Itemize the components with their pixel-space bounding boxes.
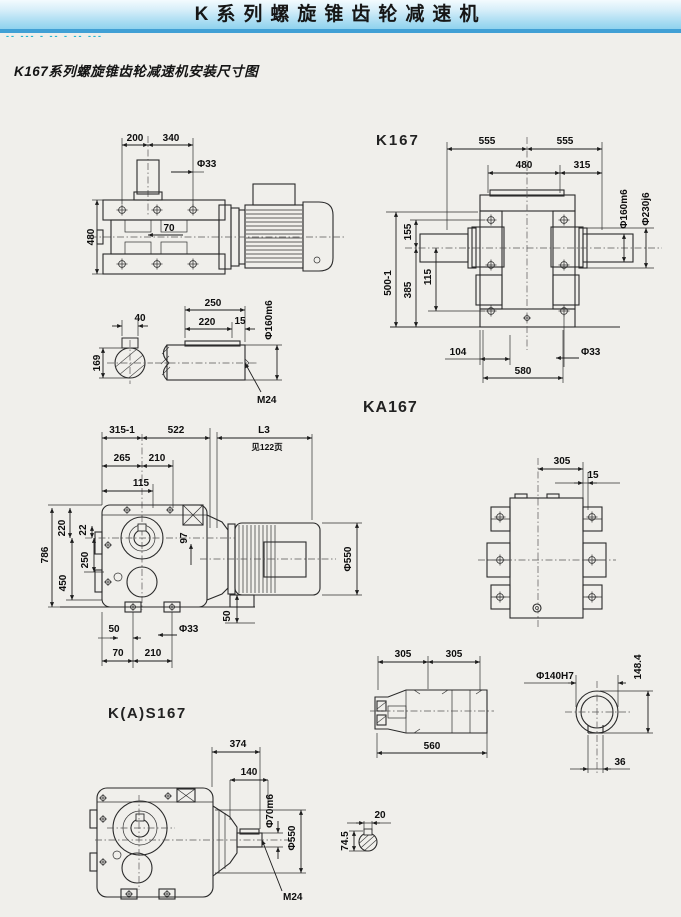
- ka167-dimensions-bottom: 50 Φ33 70 210 50: [98, 595, 255, 668]
- dim-169: 169: [92, 354, 103, 371]
- dim-70: 70: [163, 223, 175, 234]
- gearbox-motor-outline: [90, 160, 345, 274]
- drawing-k167-front-view: 555 555 480 315: [370, 125, 681, 395]
- k167-dimensions-top: 555 555 480 315: [447, 136, 602, 230]
- dim-450: 450: [58, 574, 69, 591]
- dim-74-5: 74.5: [340, 831, 351, 851]
- dim-250: 250: [205, 298, 222, 309]
- dim-dia550: Φ550: [343, 546, 354, 571]
- dim-560: 560: [424, 741, 441, 752]
- drawing-ka167-view: 315-1 522 L3 见122页 265 210 115: [40, 420, 385, 682]
- dim-220v: 220: [57, 519, 68, 536]
- dim-50-right: 50: [222, 610, 233, 622]
- dim-555-left: 555: [479, 136, 496, 147]
- dim-500-1: 500-1: [383, 270, 394, 296]
- dim-15: 15: [587, 470, 599, 481]
- motor-fins: [246, 210, 302, 262]
- k167-dimensions-bottom: 104 580 Φ33: [445, 315, 601, 383]
- dim-36: 36: [614, 757, 626, 768]
- bore-dimensions: Φ140H7 148.4 36: [524, 654, 653, 773]
- dim-70b: 70: [112, 648, 124, 659]
- page-title: K系列螺旋锥齿轮减速机: [0, 0, 681, 29]
- kas167-dimensions-right: Φ70m6 Φ550 M24: [215, 794, 306, 903]
- dim-50-left: 50: [108, 624, 120, 635]
- dim-305: 305: [554, 456, 571, 467]
- dim-522: 522: [168, 425, 185, 436]
- dim-786: 786: [40, 546, 51, 563]
- dim-dia160: Φ160m6: [264, 300, 275, 340]
- dim-140: 140: [241, 767, 258, 778]
- drawing-bore-detail: Φ140H7 148.4 36: [510, 645, 681, 780]
- dim-dia550b: Φ550: [287, 825, 298, 850]
- ka167-dimensions-left: 786 450 220 22 250: [40, 505, 104, 607]
- watermark-text: -- --- - -- - -- ---: [6, 31, 103, 41]
- dim-dia70m6: Φ70m6: [265, 794, 276, 828]
- dim-dia33b: Φ33: [179, 624, 199, 635]
- page-header: K系列螺旋锥齿轮减速机: [0, 0, 681, 33]
- dim-580: 580: [515, 366, 532, 377]
- drawing-sheet: K系列螺旋锥齿轮减速机 -- --- - -- - -- --- K167系列螺…: [0, 0, 681, 917]
- output-shaft-detail: 40 169 250 220 15 Φ160m6: [92, 298, 282, 406]
- dim-250v: 250: [80, 551, 91, 568]
- dim-22: 22: [78, 524, 89, 536]
- dim-20: 20: [374, 810, 386, 821]
- dim-210: 210: [149, 453, 166, 464]
- dim-315-1: 315-1: [109, 425, 135, 436]
- side-view-dimensions: 200 340 Φ33 70 480: [86, 133, 217, 274]
- kas167-dimensions-top: 374 140: [212, 739, 268, 829]
- hollow-shaft-dimensions: 305 305 560: [377, 649, 487, 758]
- dim-m24: M24: [257, 395, 277, 406]
- drawing-key-section: 20 74.5: [335, 795, 455, 875]
- ka167-housing-outline: 97: [60, 505, 336, 612]
- dim-dia230j6: Φ230j6: [641, 192, 652, 226]
- drawing-kas167-view: 374 140: [85, 725, 320, 917]
- dim-dia140H7: Φ140H7: [536, 671, 574, 682]
- dim-40: 40: [134, 313, 146, 324]
- dim-555-right: 555: [557, 136, 574, 147]
- dim-dia33: Φ33: [197, 159, 217, 170]
- top-view-outline: [478, 458, 616, 628]
- dim-480: 480: [516, 160, 533, 171]
- dim-dia160m6: Φ160m6: [619, 189, 630, 229]
- dim-115: 115: [423, 268, 434, 285]
- drawing-subtitle: K167系列螺旋锥齿轮减速机安装尺寸图: [14, 60, 258, 80]
- dim-210b: 210: [145, 648, 162, 659]
- hollow-shaft-outline: [370, 690, 494, 733]
- dim-m24b: M24: [283, 892, 303, 903]
- key-section-outline: [355, 823, 382, 859]
- dim-155: 155: [403, 223, 414, 240]
- top-view-dimensions: 305 15: [538, 456, 620, 510]
- dim-305b: 305: [446, 649, 463, 660]
- dim-315: 315: [574, 160, 591, 171]
- drawing-side-view: 200 340 Φ33 70 480: [85, 122, 360, 412]
- dim-200: 200: [127, 133, 144, 144]
- model-label-kas167: K(A)S167: [108, 705, 187, 722]
- dim-L3: L3: [258, 425, 270, 436]
- dim-385: 385: [403, 281, 414, 298]
- drawing-top-view: 305 15: [470, 450, 681, 640]
- dim-220: 220: [199, 317, 216, 328]
- dim-374: 374: [230, 739, 247, 750]
- k167-dimensions-side: 155 385 115 500-1 Φ160m6 Φ230j6: [383, 189, 654, 327]
- dim-104: 104: [450, 347, 467, 358]
- dim-148-4: 148.4: [633, 654, 644, 679]
- dim-15: 15: [234, 316, 246, 327]
- dim-dia33: Φ33: [581, 347, 601, 358]
- dim-115: 115: [133, 478, 150, 489]
- dim-265: 265: [114, 453, 131, 464]
- model-label-ka167: KA167: [363, 399, 418, 417]
- dim-340: 340: [163, 133, 180, 144]
- dim-97: 97: [179, 532, 190, 544]
- dim-305a: 305: [395, 649, 412, 660]
- dim-L3-note: 见122页: [251, 442, 283, 452]
